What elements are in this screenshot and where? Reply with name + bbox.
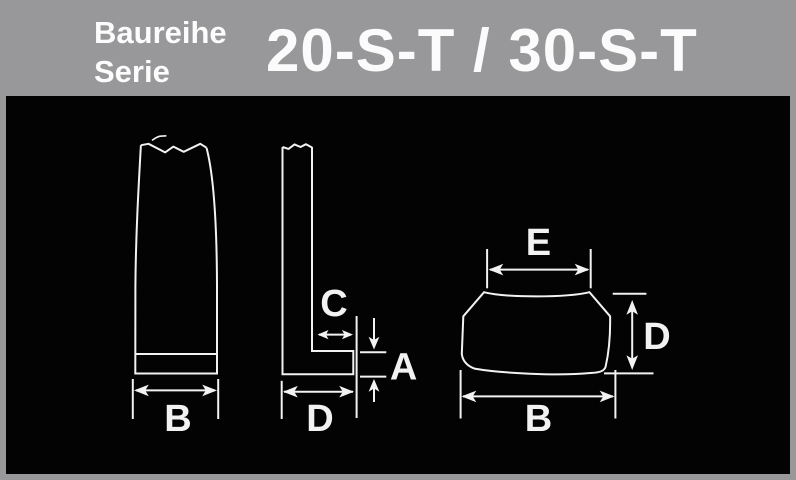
svg-text:D: D	[643, 316, 670, 358]
svg-text:B: B	[164, 398, 191, 440]
svg-text:E: E	[526, 222, 551, 264]
svg-text:A: A	[390, 346, 417, 388]
svg-text:B: B	[525, 398, 552, 440]
svg-text:C: C	[320, 283, 347, 325]
svg-text:D: D	[306, 398, 333, 440]
